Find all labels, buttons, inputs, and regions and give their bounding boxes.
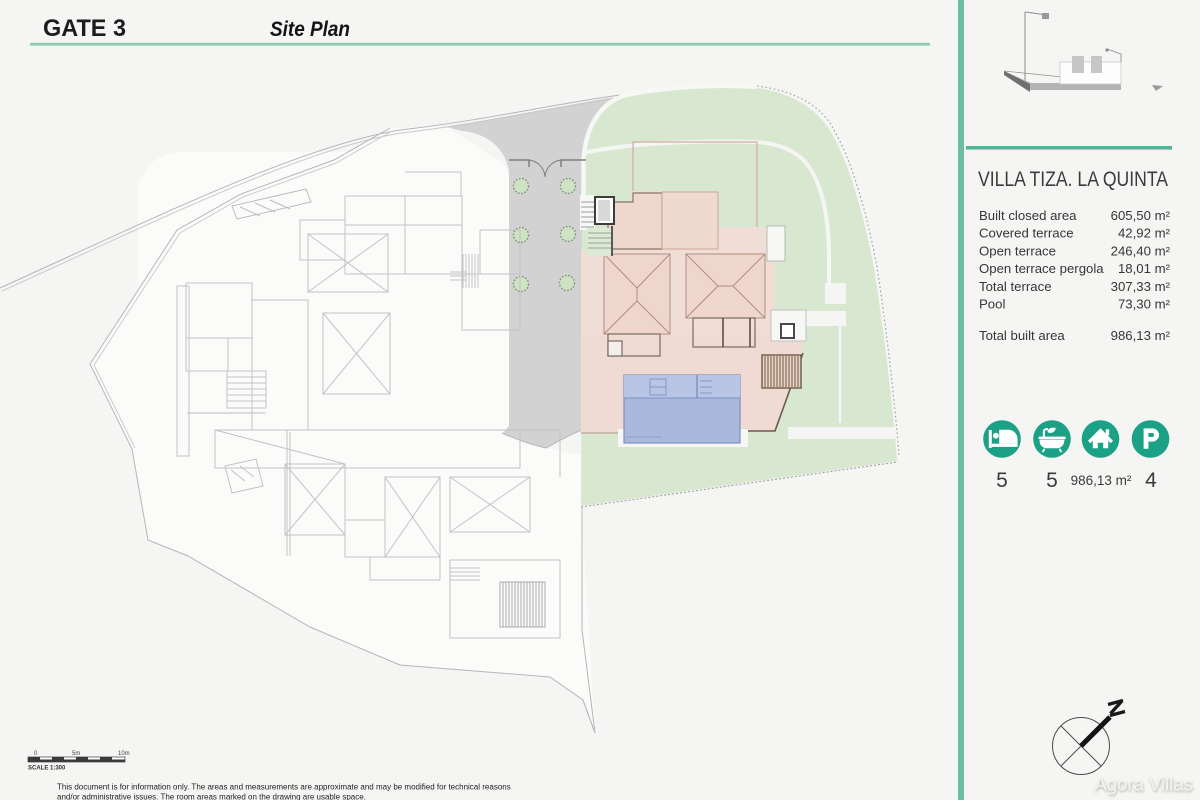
svg-text:SCALE 1:300: SCALE 1:300 — [28, 766, 66, 772]
svg-text:Open terrace: Open terrace — [979, 244, 1056, 259]
svg-text:Built closed area: Built closed area — [979, 208, 1077, 223]
svg-text:This document is for informati: This document is for information only. T… — [57, 783, 511, 792]
svg-text:Agora Villas: Agora Villas — [1095, 774, 1193, 795]
svg-text:VILLA TIZA. LA QUINTA: VILLA TIZA. LA QUINTA — [978, 167, 1169, 191]
svg-text:4: 4 — [1145, 469, 1157, 492]
svg-text:73,30 m²: 73,30 m² — [1118, 297, 1171, 312]
svg-text:and/or administrative issues.: and/or administrative issues. The room a… — [57, 793, 366, 800]
svg-text:986,13 m²: 986,13 m² — [1071, 473, 1132, 488]
svg-text:5m: 5m — [72, 751, 80, 757]
svg-text:Total terrace: Total terrace — [979, 279, 1052, 294]
svg-text:GATE 3: GATE 3 — [43, 15, 126, 42]
svg-text:10m: 10m — [118, 751, 130, 757]
svg-text:Open terrace pergola: Open terrace pergola — [979, 261, 1104, 276]
svg-text:Site Plan: Site Plan — [270, 18, 350, 41]
svg-text:605,50 m²: 605,50 m² — [1111, 208, 1171, 223]
svg-text:5: 5 — [1046, 469, 1058, 492]
svg-text:Pool: Pool — [979, 297, 1005, 312]
svg-text:986,13 m²: 986,13 m² — [1111, 328, 1171, 343]
svg-text:0: 0 — [34, 751, 38, 757]
svg-text:Covered terrace: Covered terrace — [979, 226, 1074, 241]
svg-text:42,92 m²: 42,92 m² — [1118, 226, 1171, 241]
svg-text:307,33 m²: 307,33 m² — [1111, 279, 1171, 294]
svg-text:Total built area: Total built area — [979, 328, 1065, 343]
svg-text:18,01 m²: 18,01 m² — [1118, 261, 1171, 276]
svg-text:5: 5 — [996, 469, 1008, 492]
svg-text:246,40 m²: 246,40 m² — [1111, 244, 1171, 259]
